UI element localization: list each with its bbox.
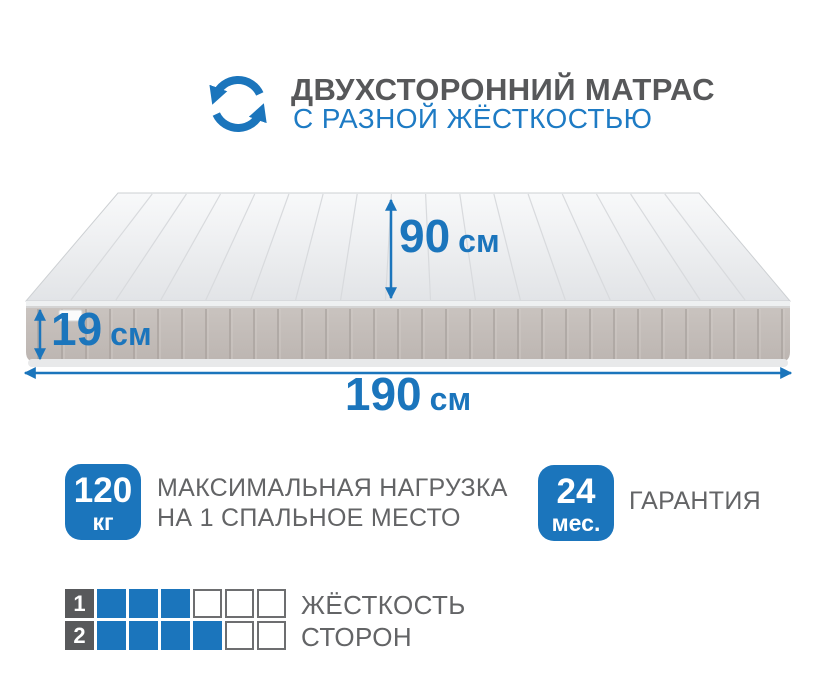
warranty-value: 24 bbox=[538, 465, 614, 509]
firmness-side-2-label: 2 bbox=[65, 621, 94, 650]
firmness-cell-filled bbox=[97, 589, 126, 618]
warranty-label: ГАРАНТИЯ bbox=[629, 486, 761, 516]
firmness-row-side-2: 2 bbox=[65, 621, 286, 650]
max-load-unit: кг bbox=[65, 508, 141, 534]
max-load-badge: 120 кг bbox=[65, 464, 141, 540]
length-unit: см bbox=[430, 381, 471, 417]
warranty-badge: 24 мес. bbox=[538, 465, 614, 541]
firmness-caption-line1: ЖЁСТКОСТЬ bbox=[301, 589, 466, 621]
mattress-bottom-piping bbox=[28, 359, 788, 367]
firmness-cell-empty bbox=[193, 589, 222, 618]
firmness-side-1-label: 1 bbox=[65, 589, 94, 618]
height-unit: см bbox=[110, 316, 151, 352]
height-dimension-label: 19см bbox=[51, 306, 152, 352]
firmness-cell-filled bbox=[97, 621, 126, 650]
firmness-cell-filled bbox=[129, 589, 158, 618]
height-value: 19 bbox=[51, 303, 102, 355]
warranty-unit: мес. bbox=[538, 509, 614, 535]
firmness-cell-empty bbox=[257, 589, 286, 618]
rotate-arrows-icon bbox=[200, 67, 274, 141]
max-load-value: 120 bbox=[65, 464, 141, 508]
product-subtitle: С РАЗНОЙ ЖЁСТКОСТЬЮ bbox=[293, 103, 652, 135]
firmness-cell-filled bbox=[129, 621, 158, 650]
max-load-label-line1: МАКСИМАЛЬНАЯ НАГРУЗКА bbox=[157, 473, 508, 503]
width-dimension-label: 90см bbox=[399, 213, 500, 259]
firmness-cell-empty bbox=[225, 589, 254, 618]
width-unit: см bbox=[458, 223, 499, 259]
length-value: 190 bbox=[345, 368, 422, 420]
firmness-cell-empty bbox=[225, 621, 254, 650]
firmness-caption: ЖЁСТКОСТЬ СТОРОН bbox=[301, 589, 466, 653]
mattress-illustration bbox=[0, 160, 816, 400]
firmness-cell-filled bbox=[161, 621, 190, 650]
max-load-label: МАКСИМАЛЬНАЯ НАГРУЗКА НА 1 СПАЛЬНОЕ МЕСТ… bbox=[157, 473, 508, 533]
length-dimension-label: 190см bbox=[0, 371, 816, 417]
firmness-cell-filled bbox=[193, 621, 222, 650]
firmness-cell-filled bbox=[161, 589, 190, 618]
width-value: 90 bbox=[399, 210, 450, 262]
firmness-caption-line2: СТОРОН bbox=[301, 621, 466, 653]
firmness-cell-empty bbox=[257, 621, 286, 650]
max-load-label-line2: НА 1 СПАЛЬНОЕ МЕСТО bbox=[157, 503, 508, 533]
firmness-row-side-1: 1 bbox=[65, 589, 286, 618]
